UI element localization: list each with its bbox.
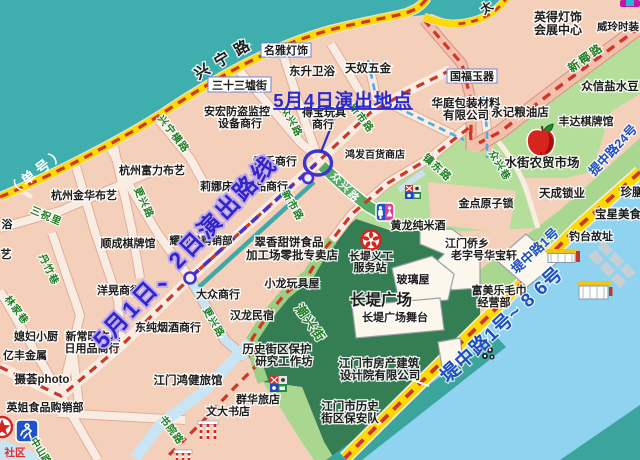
svg-text:设备商行: 设备商行 — [218, 116, 262, 130]
svg-text:亿丰金属: 亿丰金属 — [3, 348, 47, 362]
svg-text:英姐食品购销部: 英姐食品购销部 — [6, 400, 84, 414]
svg-text:媳妇小厨: 媳妇小厨 — [14, 329, 58, 343]
svg-text:顺成棋牌馆: 顺成棋牌馆 — [101, 236, 156, 250]
svg-text:加工场零批专卖店: 加工场零批专卖店 — [245, 248, 338, 262]
svg-text:长堤广场: 长堤广场 — [350, 290, 412, 309]
svg-text:东升卫浴: 东升卫浴 — [289, 64, 335, 78]
svg-text:江门市房产建筑: 江门市房产建筑 — [339, 356, 420, 370]
svg-text:珍膳: 珍膳 — [621, 185, 640, 199]
svg-text:文大书店: 文大书店 — [206, 404, 250, 418]
svg-text:宝星美食: 宝星美食 — [595, 207, 640, 221]
svg-text:历史街区保护: 历史街区保护 — [243, 342, 312, 356]
svg-text:英得灯饰: 英得灯饰 — [534, 9, 582, 24]
svg-text:服务站: 服务站 — [354, 260, 387, 274]
svg-text:众信盐水豆: 众信盐水豆 — [581, 79, 639, 93]
svg-text:黄龙纯米酒: 黄龙纯米酒 — [391, 218, 446, 232]
svg-text:威玲时装: 威玲时装 — [597, 20, 639, 33]
svg-text:会展中心: 会展中心 — [534, 22, 582, 37]
svg-text:社区: 社区 — [4, 446, 26, 459]
svg-text:大众商行: 大众商行 — [196, 287, 240, 301]
svg-text:水街农贸市场: 水街农贸市场 — [504, 155, 579, 170]
svg-text:有限公司: 有限公司 — [443, 108, 489, 122]
svg-text:群华旅店: 群华旅店 — [235, 392, 280, 406]
svg-text:金点原子锁: 金点原子锁 — [458, 196, 514, 210]
svg-text:长堤义工: 长堤义工 — [349, 249, 393, 263]
svg-text:商行: 商行 — [312, 117, 334, 131]
svg-text:杭州富力布艺: 杭州富力布艺 — [119, 163, 185, 177]
svg-text:老字号华宝轩: 老字号华宝轩 — [450, 248, 517, 262]
svg-text:杭州金华布艺: 杭州金华布艺 — [51, 188, 117, 202]
svg-text:安宏防盗监控: 安宏防盗监控 — [204, 104, 270, 118]
svg-text:研究工作坊: 研究工作坊 — [255, 354, 313, 368]
svg-text:设计院有限公司: 设计院有限公司 — [340, 368, 421, 382]
svg-text:丰达棋牌馆: 丰达棋牌馆 — [559, 114, 614, 128]
svg-text:5月4日演出地点: 5月4日演出地点 — [273, 90, 413, 111]
svg-text:三十三墟街: 三十三墟街 — [212, 78, 267, 92]
svg-text:鸿发百货商店: 鸿发百货商店 — [345, 148, 405, 161]
svg-text:街区保安队: 街区保安队 — [320, 411, 379, 425]
svg-text:艺: 艺 — [1, 247, 12, 261]
svg-text:摄荟photo: 摄荟photo — [15, 372, 70, 386]
svg-text:江门侨乡: 江门侨乡 — [445, 236, 489, 250]
svg-text:东纯烟酒商行: 东纯烟酒商行 — [135, 320, 201, 334]
svg-text:永记粮油店: 永记粮油店 — [490, 105, 549, 119]
svg-text:天成锁业: 天成锁业 — [539, 186, 585, 200]
svg-text:浴: 浴 — [2, 217, 14, 231]
svg-text:翠香甜饼食品: 翠香甜饼食品 — [255, 235, 324, 249]
svg-text:小龙玩具屋: 小龙玩具屋 — [264, 276, 320, 290]
svg-text:钓台故址: 钓台故址 — [569, 229, 613, 243]
svg-text:汉龙民宿: 汉龙民宿 — [230, 308, 274, 322]
svg-text:江门鸿健旅馆: 江门鸿健旅馆 — [154, 373, 223, 387]
svg-text:国福玉器: 国福玉器 — [450, 69, 495, 83]
svg-text:玻璃屋: 玻璃屋 — [397, 272, 430, 286]
svg-text:江门市历史: 江门市历史 — [321, 399, 379, 413]
svg-text:长堤广场舞台: 长堤广场舞台 — [362, 310, 428, 324]
svg-text:名雅灯饰: 名雅灯饰 — [264, 43, 308, 57]
svg-text:天奴五金: 天奴五金 — [345, 61, 391, 75]
